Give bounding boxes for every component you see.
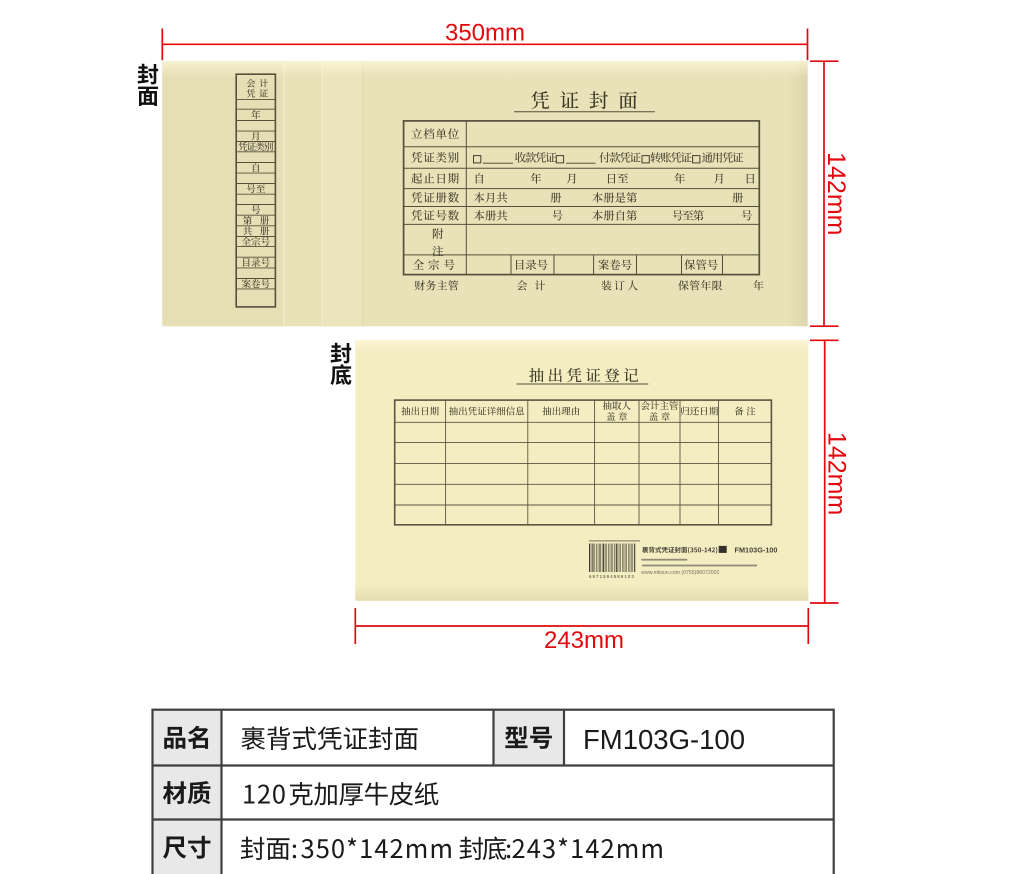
svg-text:142mm: 142mm	[822, 152, 850, 235]
svg-text:350mm: 350mm	[445, 20, 525, 47]
svg-text:FM103G-100: FM103G-100	[735, 545, 778, 554]
svg-text:142mm: 142mm	[823, 432, 851, 515]
svg-text:FM103G-100: FM103G-100	[583, 724, 745, 755]
svg-text:www.mlisun.com (0755)8607200: www.mlisun.com (0755)86072002	[641, 570, 719, 576]
svg-text:6971594586103: 6971594586103	[589, 574, 635, 579]
svg-text:243mm: 243mm	[544, 627, 624, 654]
